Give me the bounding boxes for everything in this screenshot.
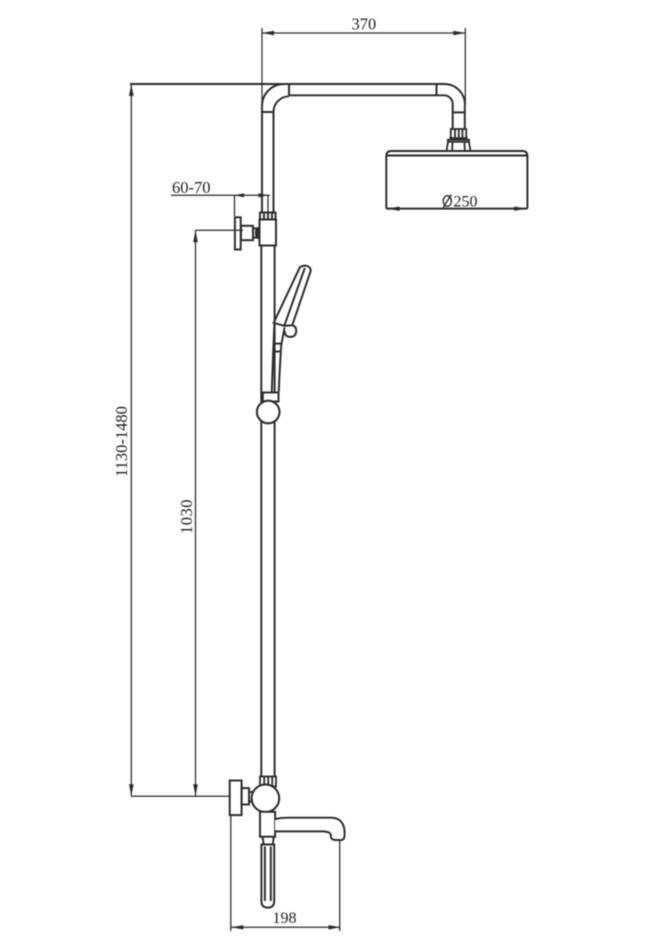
svg-text:60-70: 60-70 <box>172 178 211 197</box>
svg-text:250: 250 <box>454 194 478 211</box>
svg-text:1030: 1030 <box>177 499 196 534</box>
svg-text:1130-1480: 1130-1480 <box>112 406 131 477</box>
svg-text:198: 198 <box>273 910 297 927</box>
svg-text:370: 370 <box>352 15 377 34</box>
